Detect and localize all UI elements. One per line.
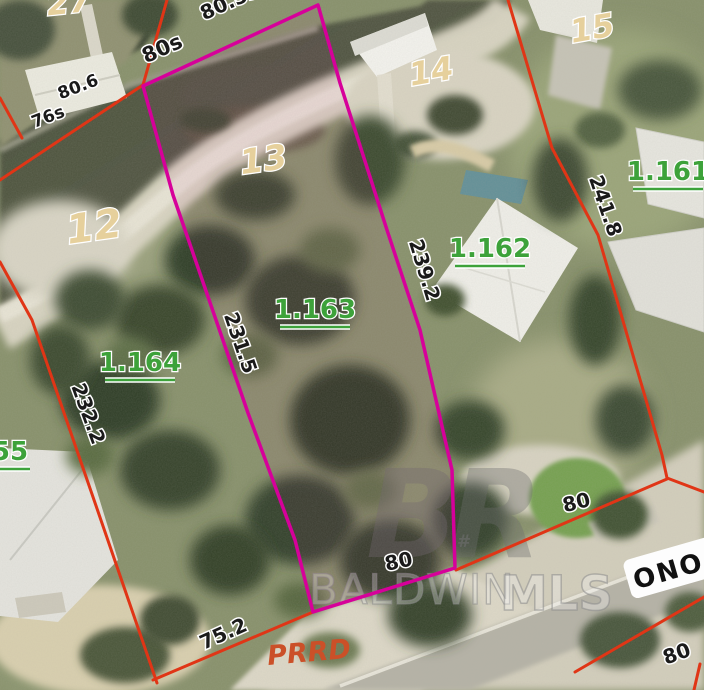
lot-number-12: 12 xyxy=(63,200,125,253)
watermark-suffix: MLS xyxy=(500,566,613,622)
aerial-parcel-map: BR # BALDWIN MLS 27 12 13 14 15 80.5s 80… xyxy=(0,0,704,690)
parcel-id-1162: 1.162 xyxy=(449,234,531,264)
watermark-symbol: # xyxy=(457,532,471,552)
parcel-id-55: 55 xyxy=(0,437,28,467)
parcel-id-1163: 1.163 xyxy=(274,295,356,325)
lot-number-15: 15 xyxy=(567,6,617,51)
lot-number-13: 13 xyxy=(237,137,289,183)
parcel-id-1161: 1.161 xyxy=(627,157,704,187)
lot-number-14: 14 xyxy=(406,49,456,94)
parcel-id-1164: 1.164 xyxy=(99,348,181,378)
